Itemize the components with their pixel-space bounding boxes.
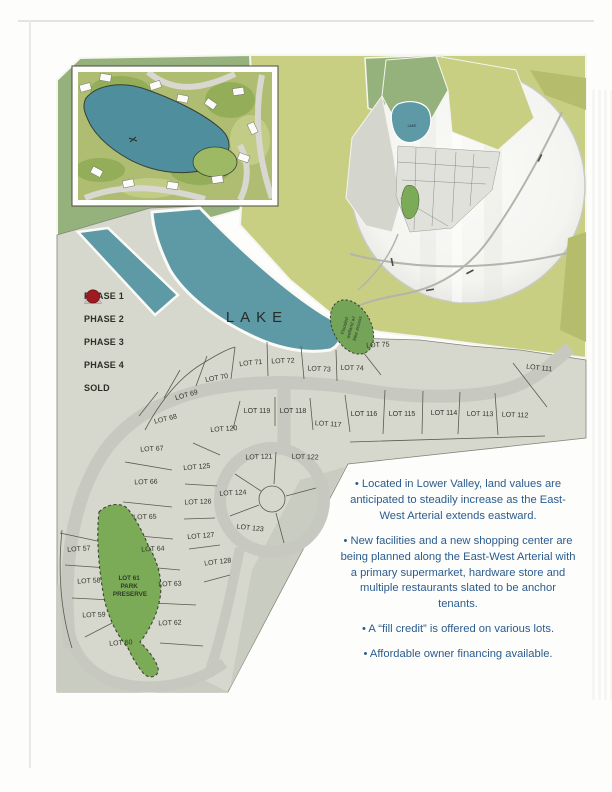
legend-label: PHASE 2: [84, 314, 124, 324]
lot-label: LOT 124: [219, 489, 247, 497]
legend-item-sold: SOLD: [84, 381, 124, 395]
lot-label: LOT 126: [184, 499, 211, 507]
aerial-inset: [72, 66, 278, 206]
lot-label: LOT 75: [366, 341, 390, 349]
lot-label: LOT 67: [140, 445, 164, 453]
lot-label: LOT 119: [244, 408, 271, 415]
lot-label: LOT 113: [467, 411, 494, 418]
note-bullet: • Located in Lower Valley, land values a…: [339, 477, 577, 525]
legend: PHASE 1 PHASE 2 PHASE 3 PHASE 4 SOLD: [84, 289, 124, 395]
lot-label: LOT 118: [280, 408, 307, 415]
lot-label: LOT 114: [431, 410, 458, 417]
lot-label: LOT 58: [77, 577, 101, 585]
legend-item-phase4: PHASE 4: [84, 358, 124, 372]
lot-label: LOT 116: [351, 411, 378, 418]
sold-circle-icon: [84, 289, 102, 304]
mini-lake-label: LAKE: [408, 124, 417, 128]
legend-label: SOLD: [84, 383, 110, 393]
lot-label: LOT 122: [291, 454, 318, 462]
brochure-page: LAKE: [0, 0, 612, 792]
legend-item-phase2: PHASE 2: [84, 312, 124, 326]
lake-label: LAKE: [226, 309, 288, 326]
mini-lake: [391, 102, 431, 143]
note-bullet: • A “fill credit” is offered on various …: [339, 622, 577, 638]
lot-label: LOT 112: [502, 412, 529, 420]
lot-label: LOT 115: [389, 411, 416, 418]
lot-label: LOT 74: [340, 365, 364, 373]
aerial-peninsula: [193, 147, 237, 177]
note-bullet: • Affordable owner financing available.: [339, 647, 577, 663]
lot-label: LOT 121: [245, 454, 272, 462]
lot-label: LOT 63: [158, 581, 182, 589]
lot-label: LOT 72: [271, 358, 295, 366]
lot-label: LOT 66: [134, 479, 158, 487]
lot-label: LOT 64: [141, 545, 165, 553]
lot-label: LOT 65: [133, 514, 157, 522]
lot-label: LOT 59: [82, 612, 106, 620]
site-plan-map: LAKE: [0, 0, 612, 792]
culdesac-island: [259, 486, 285, 512]
lot-label: LOT 73: [307, 365, 331, 373]
legend-label: PHASE 3: [84, 337, 124, 347]
marketing-notes: • Located in Lower Valley, land values a…: [320, 477, 596, 672]
lot-label: LOT 62: [158, 620, 182, 628]
note-bullet: • New facilities and a new shopping cent…: [339, 534, 577, 614]
legend-label: PHASE 4: [84, 360, 124, 370]
legend-item-phase3: PHASE 3: [84, 335, 124, 349]
